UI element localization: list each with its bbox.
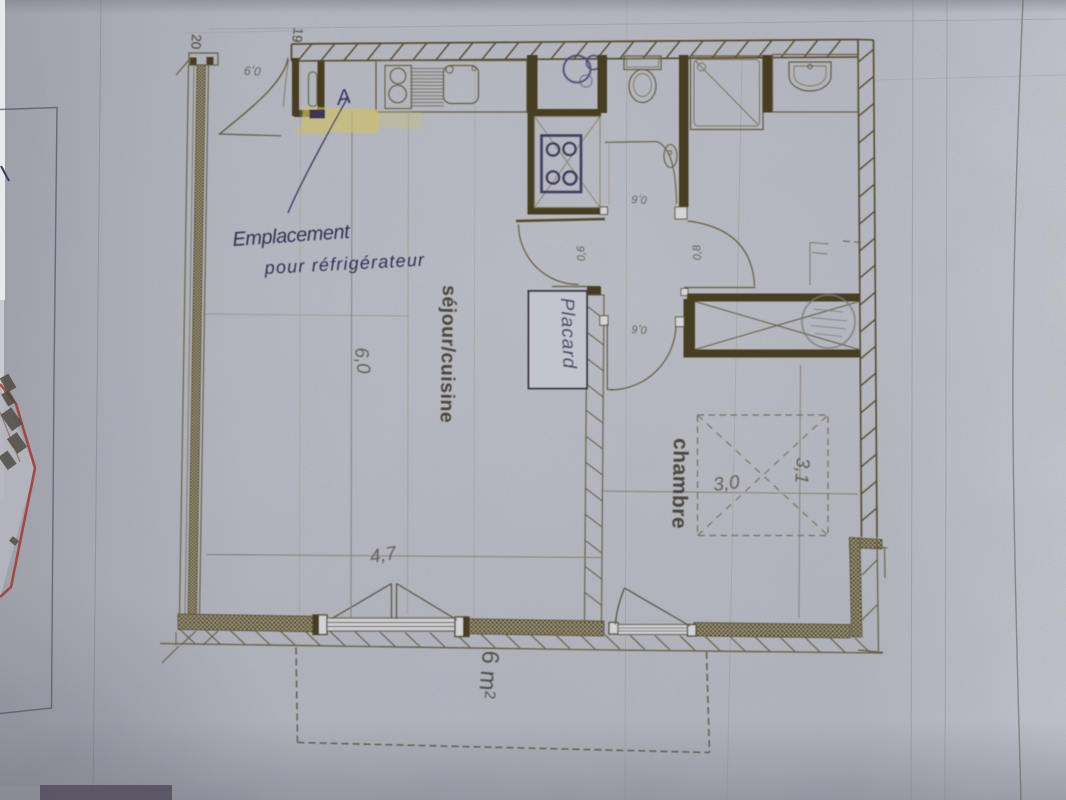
svg-text:0,8: 0,8 xyxy=(691,244,704,261)
svg-text:Placard: Placard xyxy=(556,297,579,370)
svg-text:chambre: chambre xyxy=(667,438,692,529)
svg-text:19: 19 xyxy=(289,27,306,44)
svg-text:20: 20 xyxy=(188,34,204,50)
svg-text:séjour/cuisine: séjour/cuisine xyxy=(436,285,460,424)
svg-text:0,6: 0,6 xyxy=(575,245,588,262)
svg-text:4,7: 4,7 xyxy=(368,543,399,568)
svg-text:3,1: 3,1 xyxy=(790,457,813,485)
svg-text:6,0: 6,0 xyxy=(350,346,374,375)
svg-text:3,0: 3,0 xyxy=(712,472,741,496)
svg-text:0,6: 0,6 xyxy=(631,192,648,205)
svg-text:0,9: 0,9 xyxy=(244,63,262,78)
svg-text:0,6: 0,6 xyxy=(631,322,648,335)
